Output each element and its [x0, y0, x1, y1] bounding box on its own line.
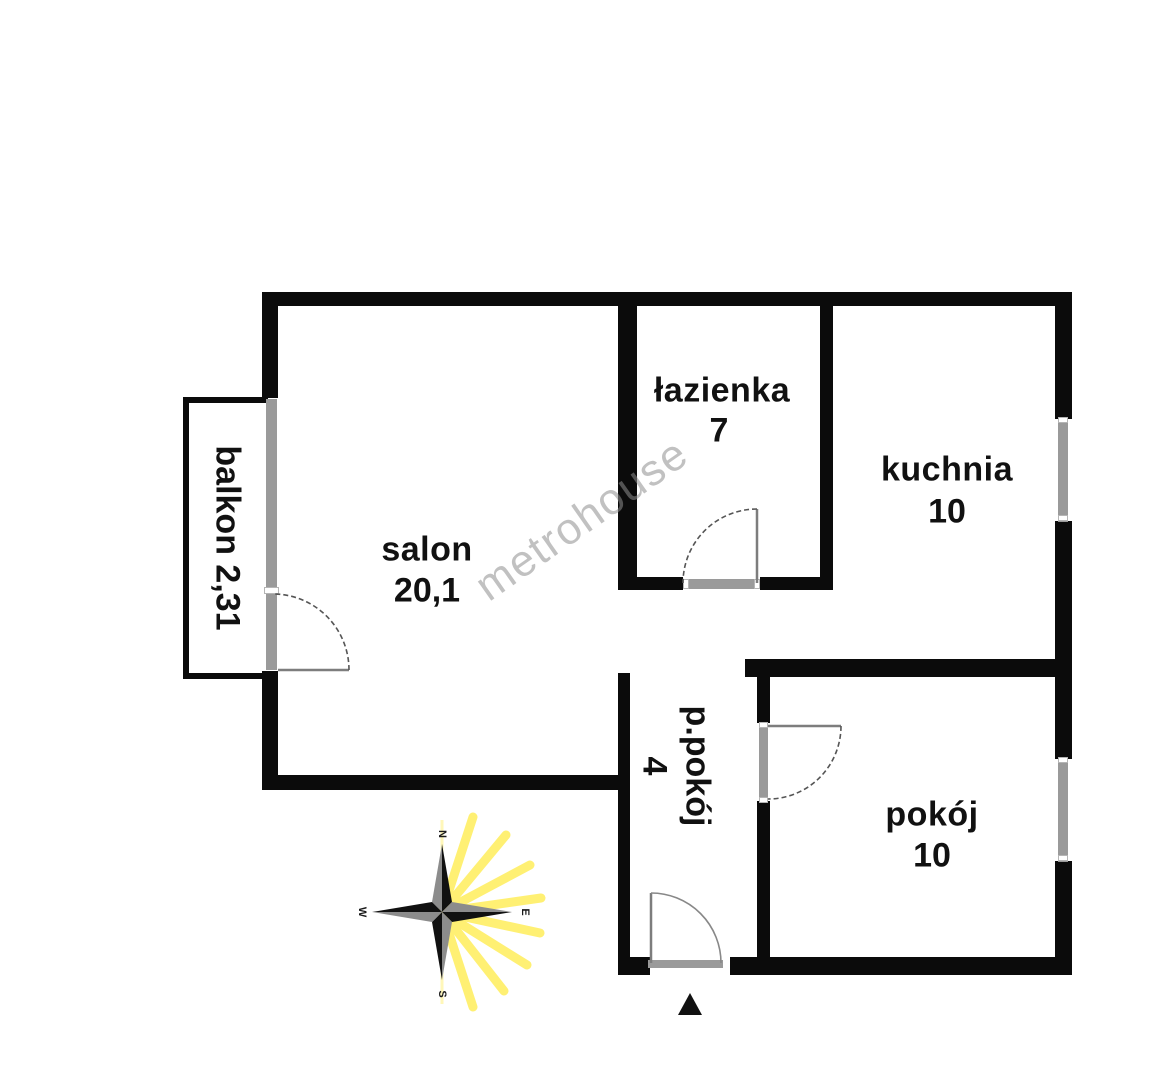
- room-area-pokoj: 10: [913, 837, 951, 876]
- compass-star: [372, 844, 512, 980]
- room-area-salon: 20,1: [394, 572, 460, 611]
- room-area-kuchnia: 10: [928, 493, 966, 532]
- compass-west-label: W: [356, 907, 368, 918]
- room-label-balkon: balkon 2,31: [206, 445, 249, 630]
- room-label-pokoj: pokój: [885, 796, 978, 835]
- room-area-balkon-text: 2,31: [208, 564, 246, 630]
- room-label-kuchnia: kuchnia: [881, 451, 1013, 490]
- room-label-ppokoj: p.pokój 4: [634, 706, 719, 827]
- room-label-ppokoj-text: p.pokój: [676, 706, 719, 827]
- entrance-arrow-icon: [678, 993, 702, 1015]
- room-area-ppokoj-text: 4: [634, 706, 677, 827]
- compass-north-label: N: [436, 830, 448, 838]
- floorplan: N E S W salon 20,1 łazienka 7 kuchnia 10…: [0, 0, 1170, 1080]
- room-label-salon: salon: [381, 531, 472, 570]
- compass-south-label: S: [436, 990, 448, 997]
- room-label-balkon-text: balkon: [208, 445, 246, 555]
- room-label-lazienka: łazienka: [654, 372, 790, 411]
- compass-east-label: E: [519, 908, 531, 915]
- room-area-lazienka: 7: [710, 412, 729, 451]
